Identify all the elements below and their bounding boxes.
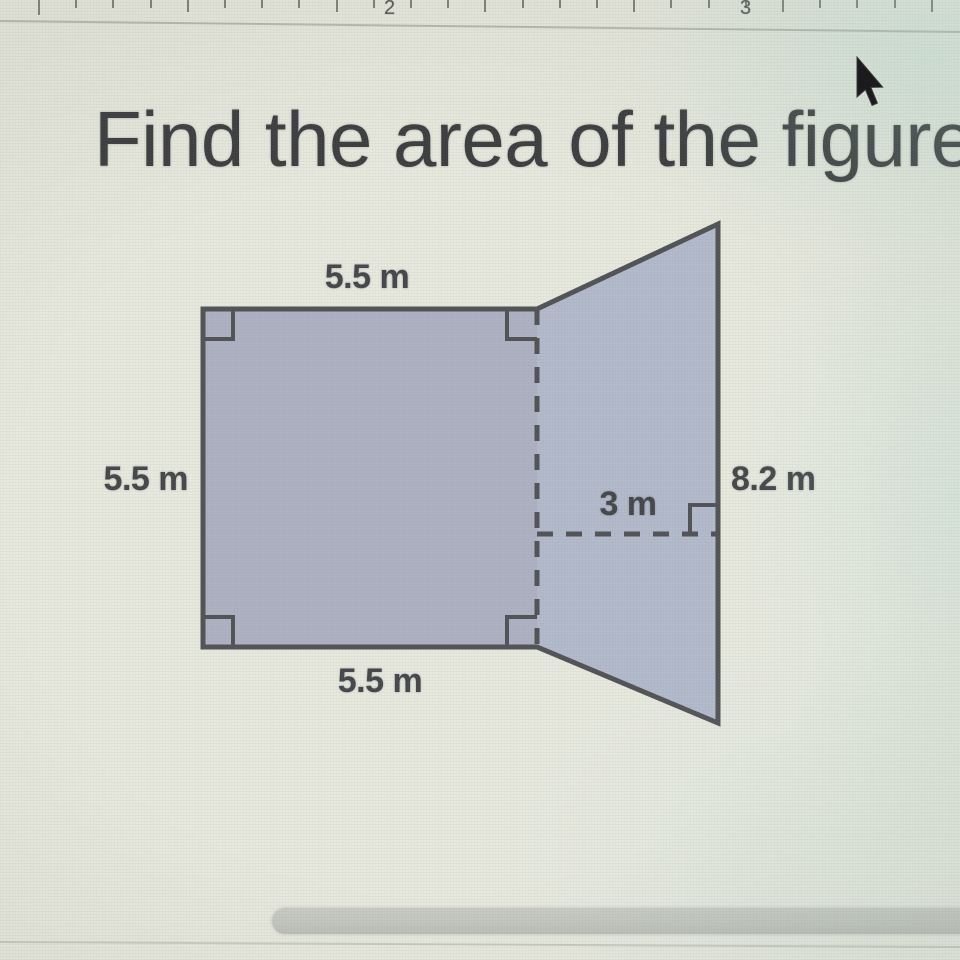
mouse-cursor-icon xyxy=(0,0,960,960)
